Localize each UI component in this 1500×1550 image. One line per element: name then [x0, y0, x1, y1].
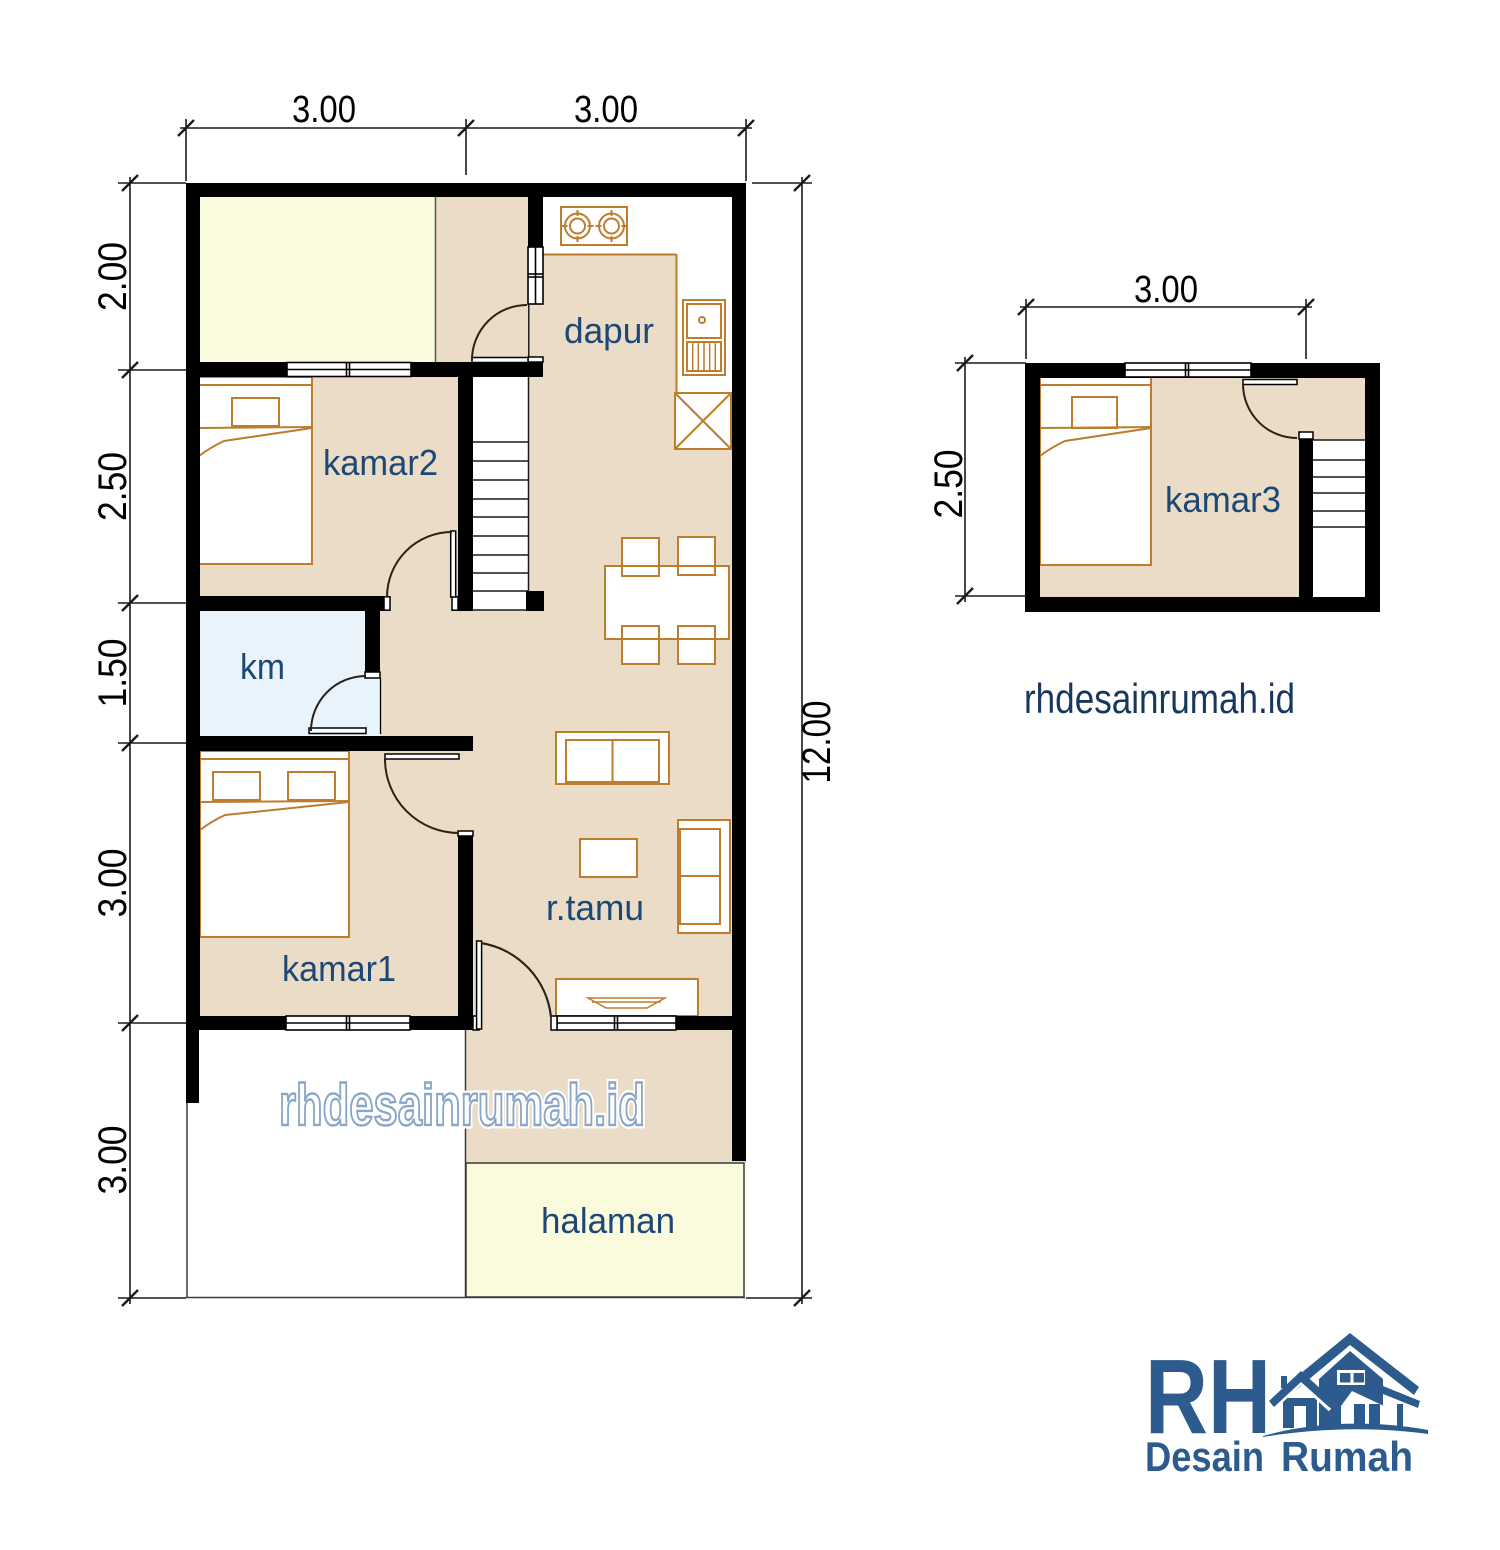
- svg-text:kamar2: kamar2: [323, 442, 438, 483]
- svg-text:12.00: 12.00: [795, 701, 839, 784]
- svg-text:r.tamu: r.tamu: [546, 887, 644, 928]
- svg-text:rhdesainrumah.id: rhdesainrumah.id: [279, 1073, 645, 1138]
- svg-text:3.00: 3.00: [1134, 269, 1198, 311]
- svg-text:kamar3: kamar3: [1165, 479, 1281, 520]
- svg-text:1.50: 1.50: [91, 639, 135, 708]
- svg-text:3.00: 3.00: [574, 89, 638, 131]
- svg-text:3.00: 3.00: [91, 849, 135, 918]
- svg-text:2.50: 2.50: [927, 450, 971, 519]
- svg-text:km: km: [240, 646, 285, 687]
- svg-text:Desain: Desain: [1145, 1433, 1264, 1480]
- svg-text:kamar1: kamar1: [282, 948, 396, 989]
- svg-text:2.50: 2.50: [91, 452, 135, 521]
- svg-text:Rumah: Rumah: [1281, 1433, 1413, 1480]
- svg-text:3.00: 3.00: [91, 1126, 135, 1195]
- svg-text:2.00: 2.00: [91, 242, 135, 311]
- svg-text:rhdesainrumah.id: rhdesainrumah.id: [1024, 675, 1295, 722]
- svg-text:halaman: halaman: [541, 1200, 675, 1241]
- svg-text:3.00: 3.00: [292, 89, 356, 131]
- svg-text:dapur: dapur: [564, 310, 654, 351]
